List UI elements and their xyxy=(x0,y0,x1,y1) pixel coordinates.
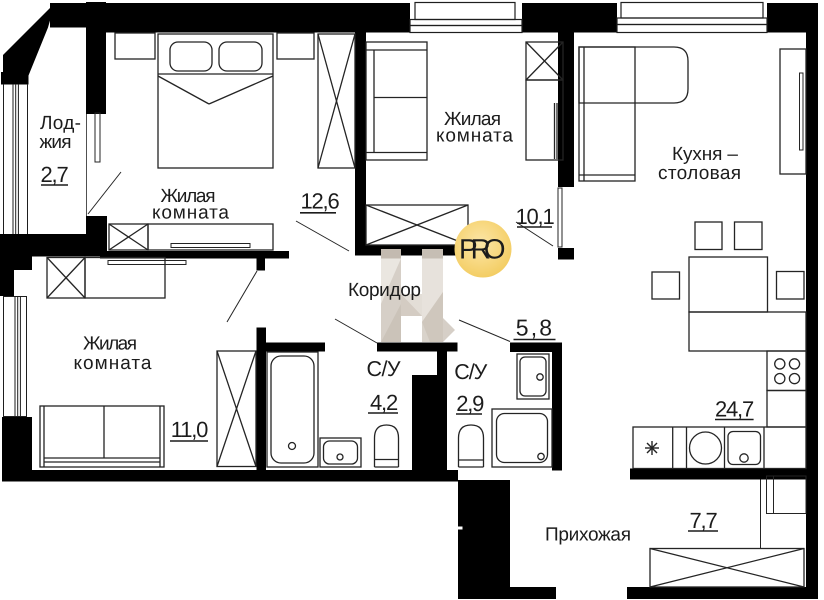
svg-text:PRO: PRO xyxy=(459,234,506,265)
svg-text:11,0: 11,0 xyxy=(171,417,208,442)
svg-text:12,6: 12,6 xyxy=(300,189,339,214)
svg-text:столовая: столовая xyxy=(658,163,741,184)
svg-text:жия: жия xyxy=(40,132,72,153)
svg-text:5,8: 5,8 xyxy=(516,315,555,341)
svg-text:Лод-: Лод- xyxy=(40,113,81,134)
svg-text:С/У: С/У xyxy=(454,360,487,384)
svg-text:Прихожая: Прихожая xyxy=(545,525,631,546)
svg-text:2,9: 2,9 xyxy=(456,391,484,416)
svg-text:Коридор: Коридор xyxy=(348,280,421,301)
svg-text:4,2: 4,2 xyxy=(370,390,398,415)
svg-text:Жилая: Жилая xyxy=(83,334,137,355)
svg-text:комната: комната xyxy=(74,353,152,374)
svg-text:7,7: 7,7 xyxy=(690,508,718,533)
svg-text:комната: комната xyxy=(436,126,513,147)
svg-text:24,7: 24,7 xyxy=(715,397,754,422)
svg-text:10,1: 10,1 xyxy=(515,204,554,229)
svg-text:С/У: С/У xyxy=(367,357,401,381)
svg-text:комната: комната xyxy=(152,203,229,224)
svg-text:2,7: 2,7 xyxy=(41,162,69,187)
